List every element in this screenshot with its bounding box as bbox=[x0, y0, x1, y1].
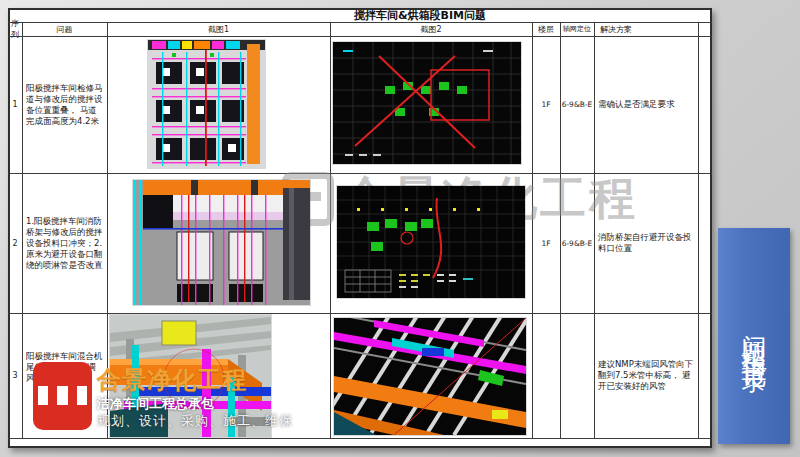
brand-name: 合景净化工程 bbox=[97, 364, 247, 396]
report-screenshot: 合景净化工程 搅拌车间&烘箱段BIM问题 序列 问题 截图1 截图2 楼层 轴网… bbox=[0, 0, 800, 457]
row3-floor bbox=[532, 313, 560, 438]
column-header-axis: 轴网定位 bbox=[560, 22, 594, 36]
grid-line bbox=[8, 438, 712, 439]
row2-screenshot1-image bbox=[133, 180, 310, 305]
row3-screenshot2-image bbox=[334, 318, 526, 435]
side-banner-text: 问题报告记录 bbox=[738, 315, 771, 357]
row3-axis bbox=[560, 313, 594, 438]
row2-screenshot2-image bbox=[337, 186, 525, 298]
row2-axis: 6-9&B-E bbox=[560, 173, 594, 313]
column-header-solution: 解决方案 bbox=[594, 22, 698, 36]
row2-problem: 1.阳极搅拌车间消防桥架与修改后的搅拌设备投料口冲突；2.原来为避开设备口翻绕的… bbox=[22, 173, 107, 313]
row1-seq: 1 bbox=[8, 36, 22, 173]
row1-floor: 1F bbox=[532, 36, 560, 173]
column-header-problem: 问题 bbox=[22, 22, 107, 36]
column-header-screenshot2: 截图2 bbox=[330, 22, 532, 36]
row1-solution: 需确认是否满足要求 bbox=[594, 36, 698, 173]
row1-screenshot1-image bbox=[148, 40, 265, 168]
brand-tagline-1: 洁净车间工程总承包 bbox=[97, 395, 214, 413]
side-banner: 问题报告记录 bbox=[718, 228, 790, 444]
brand-tagline-2: 规划、设计、采购、施工、维保 bbox=[97, 412, 293, 430]
column-header-screenshot1: 截图1 bbox=[107, 22, 330, 36]
column-header-floor: 楼层 bbox=[532, 22, 560, 36]
row2-solution: 消防桥架自行避开设备投料口位置 bbox=[594, 173, 698, 313]
row3-seq: 3 bbox=[8, 313, 22, 438]
column-header-seq: 序列 bbox=[8, 22, 22, 36]
row2-seq: 2 bbox=[8, 173, 22, 313]
row3-solution: 建议NMP末端回风管向下翻到7.5米管中标高， 避开已安装好的风管 bbox=[594, 313, 698, 438]
row2-floor: 1F bbox=[532, 173, 560, 313]
cj-monogram-icon bbox=[33, 362, 92, 434]
row1-problem: 阳极搅拌车间检修马道与修改后的搅拌设备位置重叠， 马道完成面高度为4.2米 bbox=[22, 36, 107, 173]
row1-axis: 6-9&B-E bbox=[560, 36, 594, 173]
grid-line bbox=[698, 22, 699, 438]
table-title: 搅拌车间&烘箱段BIM问题 bbox=[140, 8, 700, 22]
grid-line bbox=[330, 22, 331, 438]
row1-screenshot2-image bbox=[333, 42, 521, 164]
